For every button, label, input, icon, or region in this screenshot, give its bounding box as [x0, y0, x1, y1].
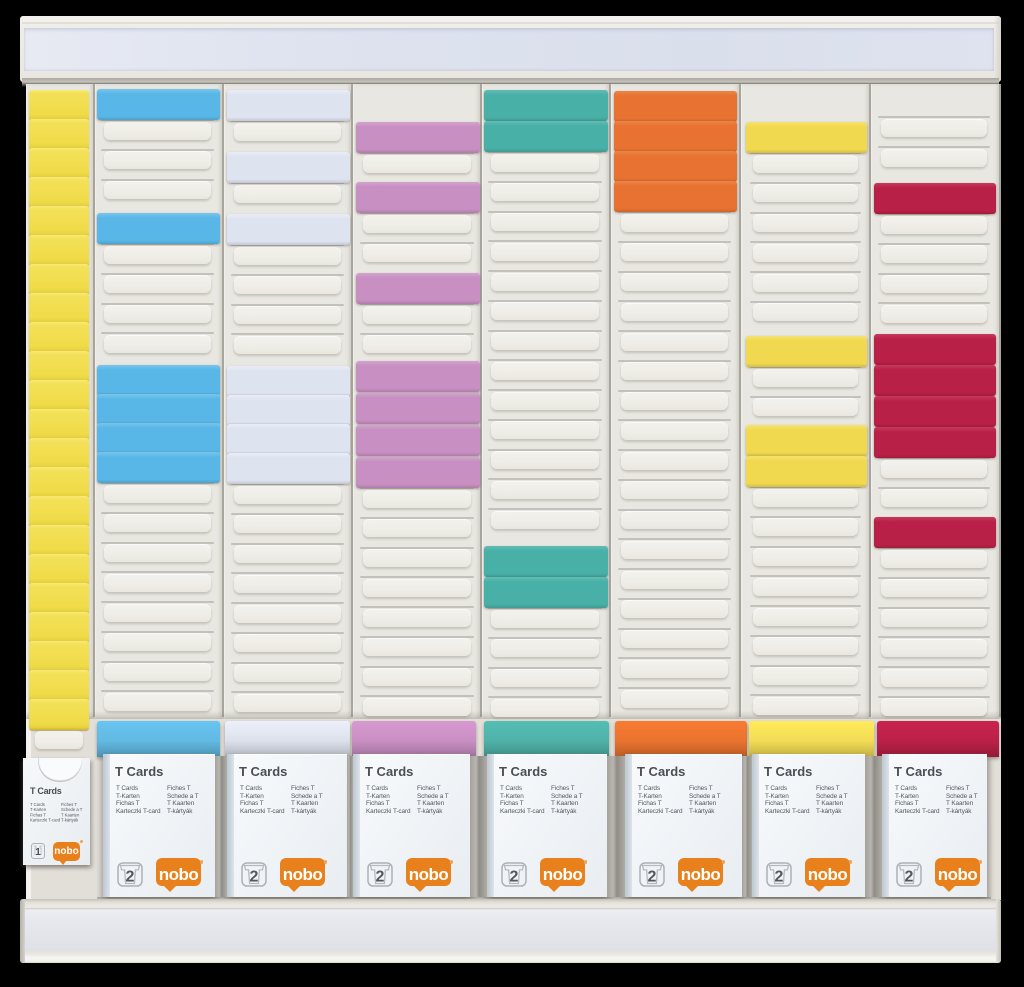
svg-text:2: 2: [250, 869, 259, 886]
svg-text:2: 2: [510, 869, 519, 886]
svg-text:2: 2: [376, 869, 385, 886]
svg-text:1: 1: [35, 847, 41, 858]
svg-text:2: 2: [775, 869, 784, 886]
svg-text:2: 2: [905, 869, 914, 886]
svg-text:2: 2: [648, 869, 657, 886]
svg-text:2: 2: [126, 869, 135, 886]
